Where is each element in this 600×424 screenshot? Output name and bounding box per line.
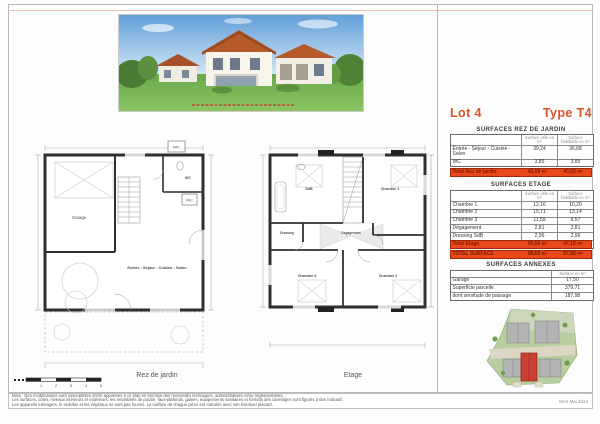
- top-accent-rule: [8, 10, 593, 11]
- cell-utile: 15,71: [521, 210, 557, 217]
- room-label-sejour: Entrée - Séjour - Cuisine - Salon: [127, 265, 187, 270]
- cell-utile: 11,59: [521, 218, 557, 225]
- revision-date: MAJ Mai 2024: [540, 399, 588, 404]
- cell-value: 379,71: [551, 285, 593, 292]
- cell-label: Chambre 3: [451, 218, 521, 225]
- cell-utile: 39,24: [521, 146, 557, 159]
- cell-utile: 3,85: [521, 160, 557, 167]
- room-label-chambre1: Chambre 1: [381, 187, 400, 191]
- room-label-degagement: Dégagement: [341, 231, 361, 235]
- table-row: Entrée - Séjour - Cuisine - Salon 39,24 …: [451, 145, 593, 159]
- table-row: Chambre 2 15,71 13,14: [451, 209, 593, 217]
- total-habitable: 40,53 m²: [556, 169, 592, 176]
- cell-label: Entrée - Séjour - Cuisine - Salon: [451, 146, 521, 159]
- col-header-utile: Surface utile en m²: [521, 191, 557, 201]
- table-row: WC 3,85 3,85: [451, 159, 593, 167]
- cell-label: Superficie parcelle: [451, 285, 551, 292]
- col-header-surface: Surface en m²: [551, 271, 593, 277]
- disclaimer-line-3: Les appareils ménagers, le mobilier et l…: [12, 403, 586, 407]
- site-plan-map: [473, 303, 593, 391]
- table-surfaces-rdj: Surface utile en m² Surface habitable en…: [450, 134, 594, 167]
- grand-total-row: TOTAL SURFACE 98,69 m² 87,68 m²: [450, 250, 592, 259]
- col-header-habitable: Surface habitable en m²: [557, 191, 593, 201]
- room-label-chambre2: Chambre 2: [379, 274, 398, 278]
- table-row: Superficie parcelle 379,71: [451, 284, 593, 292]
- cell-value: 17,50: [551, 278, 593, 285]
- panel-divider: [437, 4, 438, 392]
- total-utile: 98,69 m²: [520, 251, 556, 258]
- cell-label: Garage: [451, 278, 551, 285]
- room-label-sdb: SdB: [305, 187, 313, 191]
- house-render-image: [118, 14, 364, 112]
- total-row-etage: Total Etage 55,60 m² 47,15 m²: [450, 240, 592, 249]
- table-header-row: Surface en m²: [451, 271, 593, 277]
- cell-habitable: 10,20: [557, 202, 593, 209]
- room-label-garage: Garage: [72, 215, 87, 220]
- total-utile: 43,09 m²: [520, 169, 556, 176]
- room-label-dressing: Dressing: [280, 231, 294, 235]
- table-row: Chambre 1 12,16 10,20: [451, 201, 593, 209]
- total-label: TOTAL SURFACE: [451, 251, 520, 258]
- cell-label: dont servitude de passage: [451, 293, 551, 300]
- table-surfaces-annexes: Surface en m² Garage 17,50 Superficie pa…: [450, 270, 594, 301]
- cell-habitable: 13,14: [557, 210, 593, 217]
- total-habitable: 47,15 m²: [556, 241, 592, 248]
- cell-label: Chambre 1: [451, 202, 521, 209]
- cell-habitable: 36,68: [557, 146, 593, 159]
- scale-tick-1: 1: [40, 384, 42, 388]
- scale-bar: 1 2 3 4 5: [12, 374, 107, 390]
- lot-header: Lot 4 Type T4: [450, 106, 592, 120]
- table-row: Chambre 3 11,59 9,57: [451, 217, 593, 225]
- cell-value: 187,98: [551, 293, 593, 300]
- room-label-wc: WC: [185, 176, 191, 180]
- caption-rez-de-jardin: Rez de jardin: [97, 372, 217, 379]
- room-label-chambre3: Chambre 3: [298, 274, 317, 278]
- cell-habitable: 9,57: [557, 218, 593, 225]
- total-utile: 55,60 m²: [520, 241, 556, 248]
- caption-etage: Etage: [308, 372, 398, 379]
- plan-sheet: PAC PAC Garage WC Entrée - Séjour: [0, 0, 600, 424]
- table-row: Dressing SdB 2,96 2,96: [451, 232, 593, 240]
- cell-label: Chambre 2: [451, 210, 521, 217]
- floorplan-rez-de-jardin: PAC PAC Garage WC Entrée - Séjour: [30, 130, 235, 370]
- lot-number: Lot 4: [450, 106, 482, 120]
- table-row: Garage 17,50: [451, 277, 593, 285]
- table-row: Dégagement 2,81 2,81: [451, 224, 593, 232]
- scale-tick-4: 4: [85, 384, 87, 388]
- cell-utile: 2,81: [521, 225, 557, 232]
- total-habitable: 87,68 m²: [556, 251, 592, 258]
- table-header-row: Surface utile en m² Surface habitable en…: [451, 191, 593, 201]
- cell-utile: 12,16: [521, 202, 557, 209]
- total-label: Total Etage: [451, 241, 520, 248]
- cell-habitable: 3,85: [557, 160, 593, 167]
- title-surfaces-etage: SURFACES ETAGE: [450, 182, 592, 188]
- cell-habitable: 2,81: [557, 225, 593, 232]
- cell-label: Dégagement: [451, 225, 521, 232]
- cell-label: WC: [451, 160, 521, 167]
- table-row: dont servitude de passage 187,98: [451, 292, 593, 300]
- room-label-pac1: PAC: [173, 146, 180, 150]
- cell-habitable: 2,96: [557, 233, 593, 240]
- disclaimer-notes: Nota : Des modifications sont susceptibl…: [12, 394, 586, 407]
- table-header-row: Surface utile en m² Surface habitable en…: [451, 135, 593, 145]
- col-header-habitable: Surface habitable en m²: [557, 135, 593, 145]
- scale-tick-5: 5: [100, 384, 102, 388]
- cell-utile: 2,96: [521, 233, 557, 240]
- cell-label: Dressing SdB: [451, 233, 521, 240]
- scale-tick-2: 2: [55, 384, 57, 388]
- room-label-pac2: PAC: [186, 199, 193, 203]
- total-row-rdj: Total Rez de jardin 43,09 m² 40,53 m²: [450, 168, 592, 177]
- title-surfaces-rdj: SURFACES REZ DE JARDIN: [450, 127, 592, 133]
- lot-type: Type T4: [543, 106, 592, 120]
- title-surfaces-annexes: SURFACES ANNEXES: [450, 262, 592, 268]
- total-label: Total Rez de jardin: [451, 169, 520, 176]
- scale-tick-3: 3: [70, 384, 72, 388]
- col-header-utile: Surface utile en m²: [521, 135, 557, 145]
- floorplan-etage: SdB Chambre 1 Dressing Dégagement Chambr…: [243, 140, 435, 355]
